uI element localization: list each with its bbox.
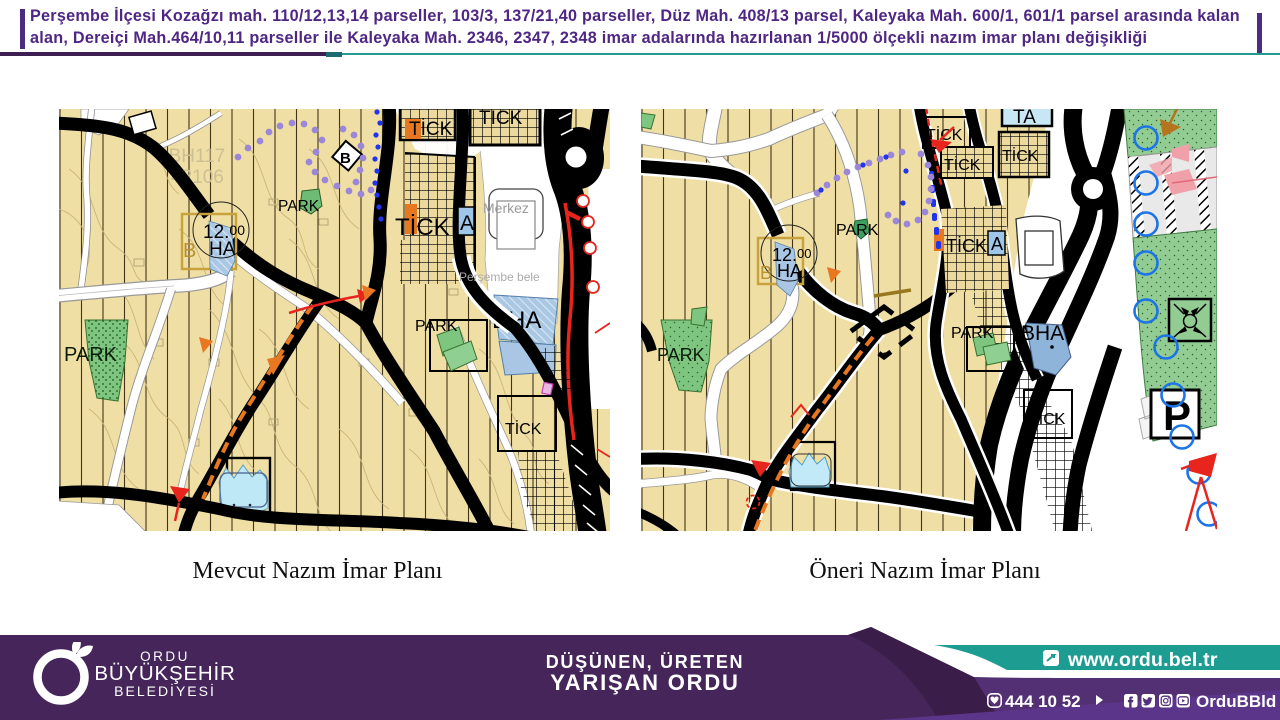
svg-text:HA: HA — [209, 239, 236, 260]
svg-text:B: B — [760, 263, 772, 283]
svg-text:PARK: PARK — [64, 344, 118, 366]
svg-text:TA: TA — [1013, 109, 1036, 128]
svg-text:Merkez: Merkez — [483, 200, 529, 216]
svg-text:P: P — [1163, 392, 1191, 439]
svg-text:TİCK: TİCK — [505, 419, 542, 438]
svg-text:TİCK: TİCK — [409, 119, 453, 140]
svg-text:PARK: PARK — [657, 345, 705, 365]
svg-text:PARK: PARK — [415, 318, 458, 335]
svg-text:TİCK: TİCK — [946, 236, 987, 256]
svg-text:A: A — [991, 234, 1003, 254]
svg-text:TİCK: TİCK — [1002, 146, 1039, 165]
svg-text:A: A — [460, 212, 474, 235]
svg-text:TİCK: TİCK — [395, 214, 450, 241]
svg-text:HA: HA — [777, 261, 802, 281]
svg-text:PARK: PARK — [951, 325, 994, 342]
svg-text:BHA: BHA — [1021, 322, 1064, 345]
svg-text:TİCK: TİCK — [944, 155, 981, 174]
svg-text:TİCK: TİCK — [479, 109, 523, 129]
svg-text:PARK: PARK — [278, 198, 320, 215]
svg-text:Perşembe bele: Perşembe bele — [459, 270, 540, 284]
svg-text:B: B — [183, 240, 196, 262]
svg-text:PARK: PARK — [836, 222, 879, 239]
svg-text:TİCK: TİCK — [1029, 409, 1066, 428]
svg-text:B: B — [340, 150, 351, 167]
